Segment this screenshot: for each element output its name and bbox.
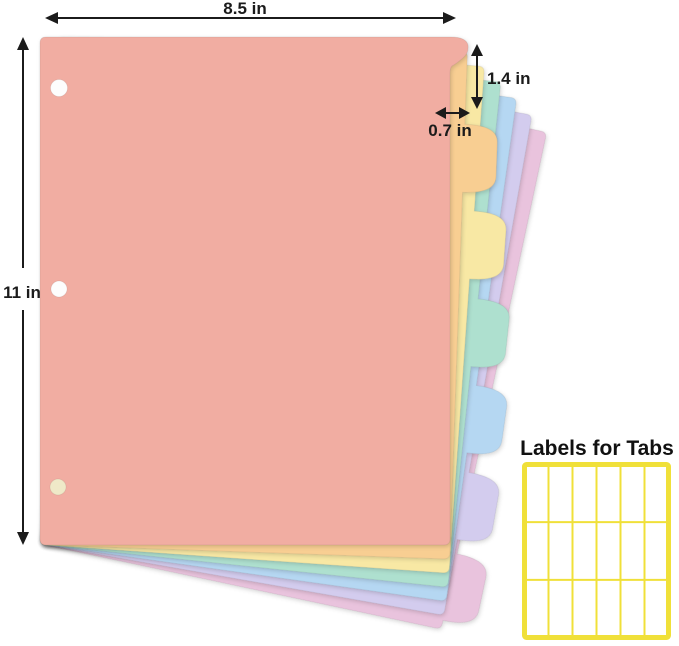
punch-hole-middle [51,281,67,297]
arrow-right-icon [443,12,456,24]
tab-height-dimension-label: 1.4 in [487,69,530,88]
product-image: 8.5 in 11 in 1.4 in 0.7 in Labels for Ta… [0,0,679,646]
divider-sheet-salmon [40,37,468,545]
arrow-down-icon [17,532,29,545]
punch-hole-top [51,80,68,97]
arrow-up-icon [17,37,29,50]
arrow-up-icon [471,44,483,56]
width-dimension: 8.5 in [45,0,456,24]
tab-width-dimension-label: 0.7 in [428,121,471,140]
label-grid [527,467,666,635]
width-dimension-label: 8.5 in [223,0,266,18]
height-dimension: 11 in [3,37,41,545]
height-dimension-label: 11 in [3,283,41,302]
divider-stack [40,37,579,636]
product-diagram: 8.5 in 11 in 1.4 in 0.7 in Labels for Ta… [0,0,679,646]
arrow-left-icon [45,12,58,24]
labels-panel: Labels for Tabs [520,437,674,638]
punch-hole-bottom [50,479,66,495]
labels-panel-title: Labels for Tabs [520,437,674,460]
